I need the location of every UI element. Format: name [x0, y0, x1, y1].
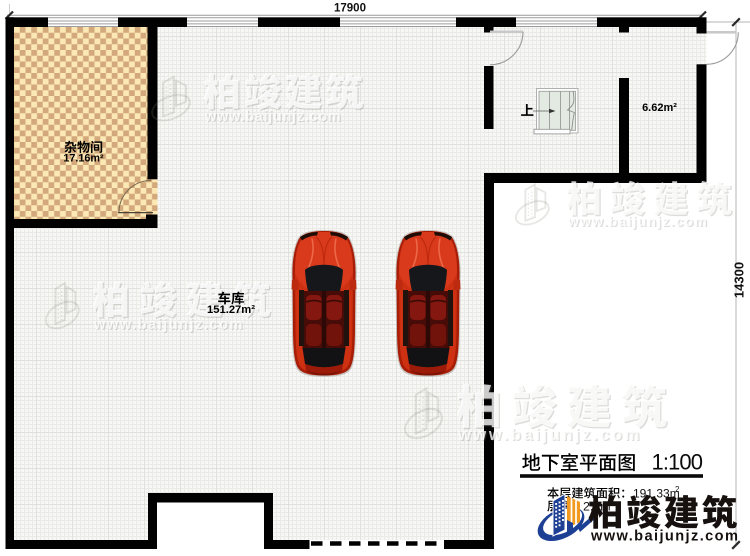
svg-text:www.baijunjz.com: www.baijunjz.com	[590, 529, 739, 545]
svg-text:14300: 14300	[732, 262, 747, 298]
svg-text:6.62m²: 6.62m²	[642, 102, 677, 114]
svg-text:1:100: 1:100	[652, 450, 703, 475]
svg-text:2: 2	[675, 485, 680, 494]
svg-text:17.16m²: 17.16m²	[63, 153, 104, 165]
svg-text:151.27m²: 151.27m²	[207, 304, 255, 316]
svg-text:17900: 17900	[334, 3, 366, 15]
svg-text:www.baijunjz.com: www.baijunjz.com	[457, 426, 642, 444]
svg-text:www.baijunjz.com: www.baijunjz.com	[567, 213, 708, 229]
svg-text:www.baijunjz.com: www.baijunjz.com	[93, 317, 244, 333]
svg-text:www.baijunjz.com: www.baijunjz.com	[204, 109, 341, 125]
